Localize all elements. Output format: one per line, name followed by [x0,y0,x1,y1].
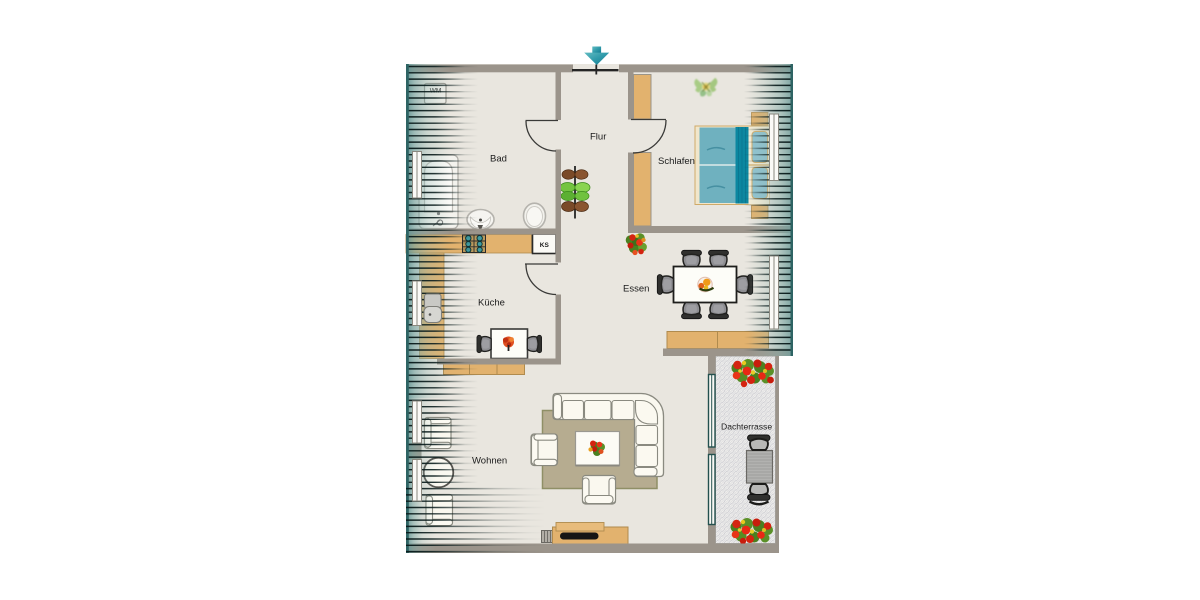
svg-text:KS: KS [540,242,550,249]
svg-text:Essen: Essen [623,284,649,295]
svg-text:Dachterrasse: Dachterrasse [721,422,772,432]
svg-text:Küche: Küche [478,298,505,309]
svg-text:Bad: Bad [490,154,507,165]
svg-text:Schlafen: Schlafen [658,156,695,167]
svg-text:Wohnen: Wohnen [472,456,507,467]
svg-text:Flur: Flur [590,132,606,143]
